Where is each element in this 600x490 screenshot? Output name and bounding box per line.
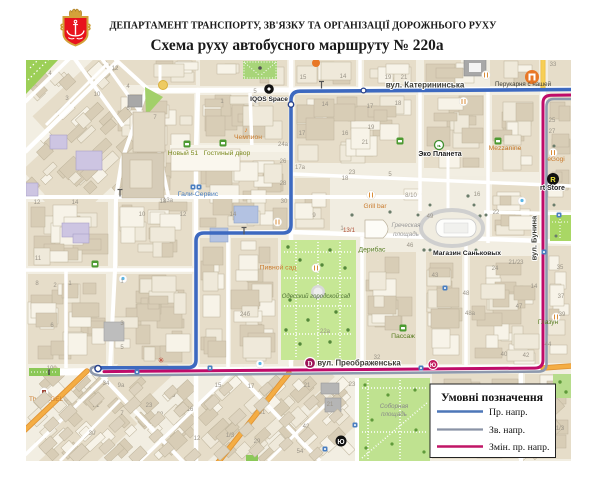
svg-text:27: 27 — [549, 129, 556, 135]
svg-text:площадь: площадь — [381, 411, 407, 418]
svg-text:Умовні позначення: Умовні позначення — [441, 390, 544, 404]
svg-text:30: 30 — [281, 199, 288, 205]
svg-text:48: 48 — [463, 291, 470, 297]
svg-text:21: 21 — [401, 75, 408, 81]
svg-text:вул. Катерининська: вул. Катерининська — [386, 81, 465, 90]
svg-text:21: 21 — [304, 383, 311, 389]
svg-text:48а: 48а — [465, 311, 476, 317]
svg-text:Змін. пр. напр.: Змін. пр. напр. — [489, 442, 549, 453]
svg-text:10: 10 — [139, 212, 146, 218]
svg-text:Дерибас: Дерибас — [359, 246, 386, 254]
svg-text:Гостиный двор: Гостиный двор — [204, 149, 251, 157]
svg-text:ДЕПАРТАМЕНТ ТРАНСПОРТУ, ЗВ'ЯЗК: ДЕПАРТАМЕНТ ТРАНСПОРТУ, ЗВ'ЯЗКУ ТА ОРГАН… — [110, 19, 498, 32]
svg-text:19: 19 — [385, 75, 392, 81]
svg-text:Пассаж: Пассаж — [391, 333, 415, 340]
svg-text:47: 47 — [516, 304, 523, 310]
svg-text:Эко Планета: Эко Планета — [418, 151, 461, 158]
svg-text:✳: ✳ — [158, 356, 165, 365]
svg-text:8/10: 8/10 — [405, 193, 417, 199]
svg-text:1/3: 1/3 — [556, 426, 565, 432]
svg-text:Ю: Ю — [337, 439, 344, 446]
svg-text:1/3: 1/3 — [226, 433, 235, 439]
svg-text:21: 21 — [327, 402, 334, 408]
svg-text:IQOS Space: IQOS Space — [250, 96, 288, 103]
svg-text:Гали-Сервис: Гали-Сервис — [178, 191, 219, 198]
svg-text:Ю: Ю — [430, 363, 436, 369]
svg-text:9а: 9а — [118, 383, 125, 389]
svg-text:❧: ❧ — [436, 144, 441, 150]
svg-text:18: 18 — [160, 199, 167, 205]
svg-text:19: 19 — [368, 125, 375, 131]
svg-text:44: 44 — [545, 342, 552, 348]
svg-text:14: 14 — [340, 74, 347, 80]
svg-text:16: 16 — [474, 192, 481, 198]
svg-text:32: 32 — [374, 355, 381, 361]
svg-text:25: 25 — [549, 118, 556, 124]
svg-text:rt Store: rt Store — [540, 185, 565, 192]
svg-text:Пр. напр.: Пр. напр. — [489, 407, 528, 418]
svg-text:26: 26 — [280, 159, 287, 165]
svg-text:вул. Преображенська: вул. Преображенська — [317, 359, 401, 368]
svg-text:10: 10 — [47, 366, 54, 372]
svg-text:Схема руху автобусного маршрут: Схема руху автобусного маршруту № 220а — [150, 37, 443, 54]
svg-text:24: 24 — [492, 266, 499, 272]
svg-text:Перукарня с нашей: Перукарня с нашей — [495, 81, 552, 88]
svg-text:14: 14 — [230, 212, 237, 218]
svg-text:17а: 17а — [295, 165, 306, 171]
svg-text:12: 12 — [34, 200, 41, 206]
svg-text:35: 35 — [557, 265, 564, 271]
svg-text:33: 33 — [550, 62, 557, 68]
svg-text:R: R — [550, 175, 556, 184]
svg-text:16: 16 — [342, 131, 349, 137]
svg-text:Пивной сад: Пивной сад — [260, 264, 297, 272]
svg-text:eGogi: eGogi — [547, 156, 564, 163]
svg-text:Магазин Саньковых: Магазин Саньковых — [433, 250, 501, 257]
svg-text:46: 46 — [407, 243, 414, 249]
svg-text:12: 12 — [180, 212, 187, 218]
svg-text:Греческая: Греческая — [392, 222, 422, 229]
svg-text:39: 39 — [559, 312, 566, 318]
svg-text:17: 17 — [248, 384, 255, 390]
svg-text:11: 11 — [35, 256, 42, 262]
svg-text:13/1: 13/1 — [343, 227, 356, 234]
svg-text:37: 37 — [558, 294, 565, 300]
svg-text:Глазун: Глазун — [538, 319, 559, 326]
svg-text:Соборная: Соборная — [380, 403, 409, 410]
svg-text:24б: 24б — [240, 312, 251, 318]
svg-text:18: 18 — [342, 176, 349, 182]
svg-text:54: 54 — [297, 449, 304, 455]
svg-text:23: 23 — [349, 382, 356, 388]
svg-text:49: 49 — [427, 214, 434, 220]
svg-text:22: 22 — [493, 210, 500, 216]
svg-text:14: 14 — [531, 284, 538, 290]
svg-text:12: 12 — [194, 436, 201, 442]
svg-text:площадь: площадь — [393, 231, 419, 238]
svg-text:21/23: 21/23 — [508, 260, 524, 266]
svg-text:Mezzanine: Mezzanine — [489, 145, 522, 152]
svg-text:23: 23 — [146, 403, 153, 409]
svg-text:17: 17 — [367, 104, 374, 110]
svg-text:21: 21 — [362, 140, 369, 146]
svg-text:17: 17 — [299, 131, 306, 137]
svg-text:10: 10 — [94, 92, 101, 98]
svg-text:15: 15 — [300, 75, 307, 81]
svg-text:34: 34 — [103, 381, 110, 387]
svg-text:♪: ♪ — [244, 126, 248, 134]
svg-text:вул. Бунина: вул. Бунина — [530, 215, 539, 261]
svg-text:40: 40 — [501, 352, 508, 358]
svg-text:23: 23 — [349, 170, 356, 176]
svg-text:D: D — [307, 360, 312, 368]
svg-text:18: 18 — [395, 101, 402, 107]
svg-text:14: 14 — [72, 200, 79, 206]
svg-text:28: 28 — [280, 181, 287, 187]
svg-text:22а: 22а — [320, 329, 331, 335]
svg-text:30: 30 — [89, 431, 96, 437]
svg-text:43: 43 — [432, 273, 439, 279]
svg-text:24а: 24а — [278, 142, 289, 148]
svg-text:Новый 51: Новый 51 — [168, 149, 199, 157]
svg-text:12: 12 — [112, 66, 119, 72]
svg-text:Чемпион: Чемпион — [234, 134, 262, 141]
svg-text:Одесский городской сад: Одесский городской сад — [282, 293, 351, 300]
svg-text:14: 14 — [322, 102, 329, 108]
svg-text:42: 42 — [523, 353, 530, 359]
svg-text:Зв. напр.: Зв. напр. — [489, 425, 525, 436]
svg-text:Grill bar: Grill bar — [363, 203, 387, 210]
